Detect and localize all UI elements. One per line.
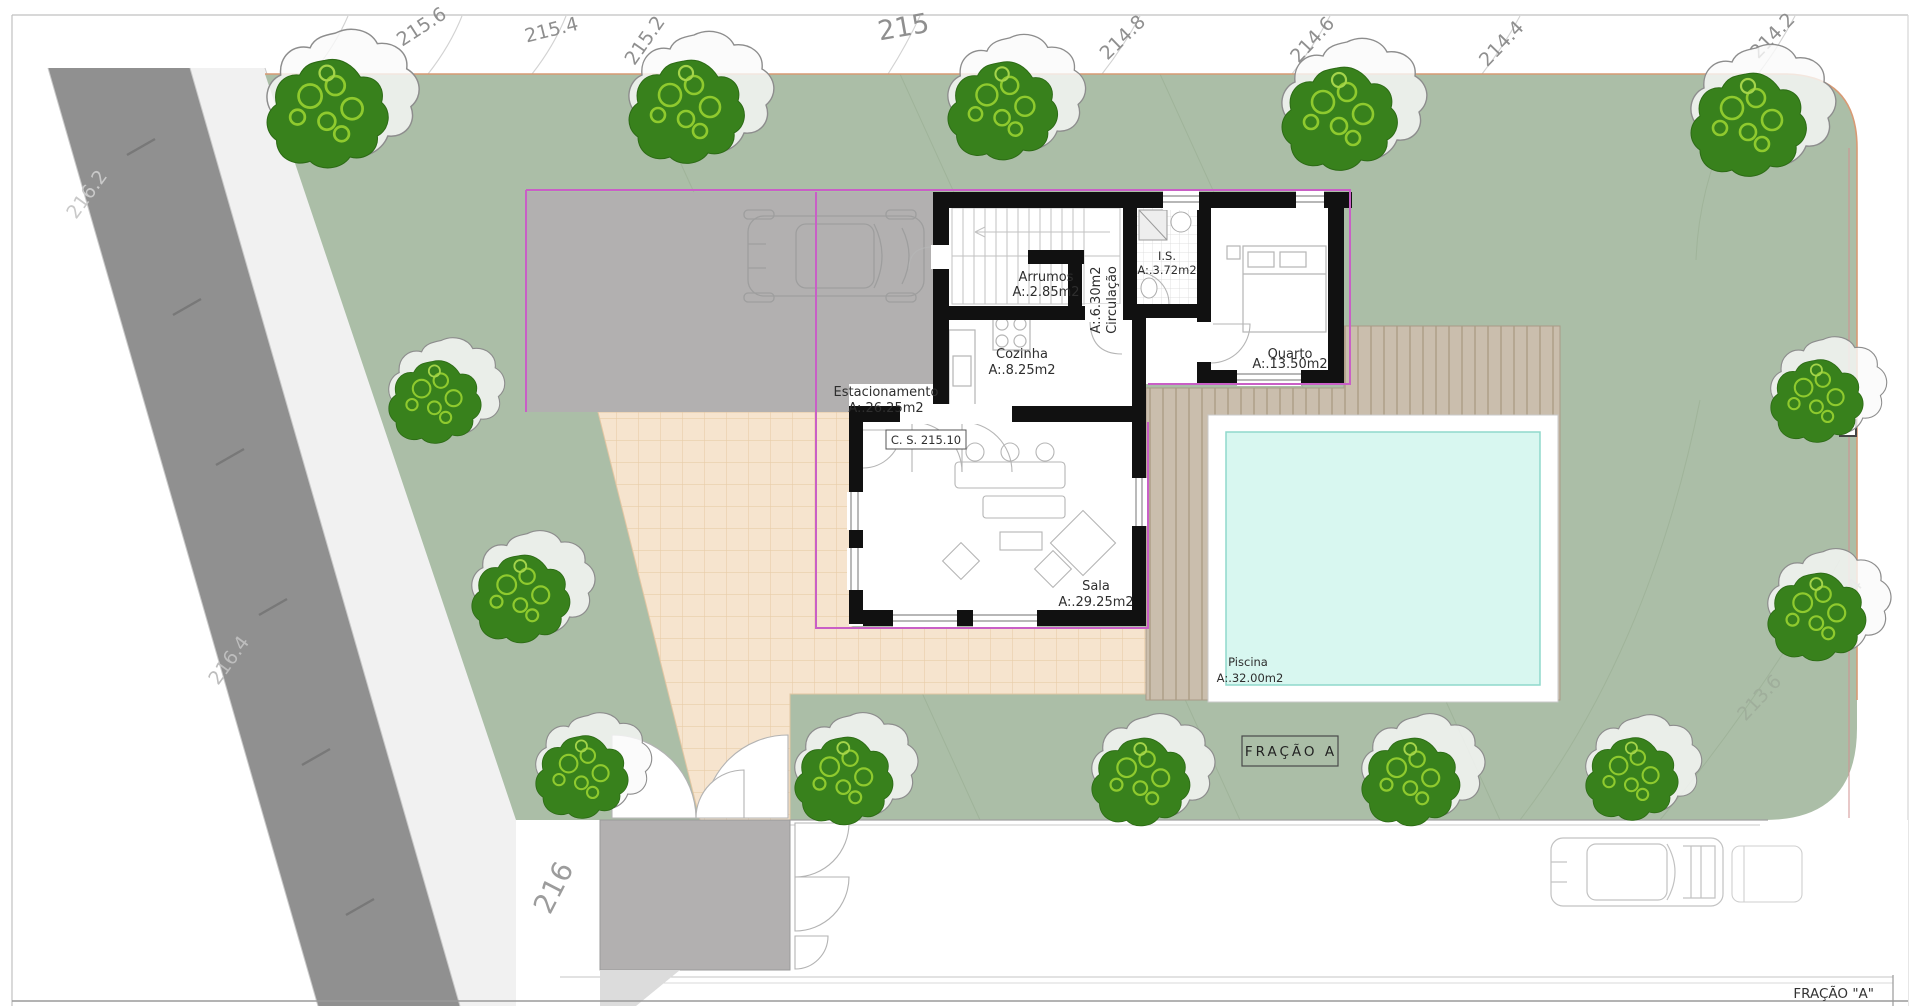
label-is: I.S. [1158,249,1176,263]
parked-car [1551,838,1723,906]
label-cozinha-area: A:.8.25m2 [988,363,1055,378]
label-arrumos: Arrumos [1019,270,1074,285]
cs-level-annotation: C. S. 215.10 [886,430,966,449]
label-estacionamento: Estacionamento [834,385,939,400]
garage-slab [526,192,933,412]
label-sala: Sala [1082,579,1110,594]
parking-bay-outline [1732,846,1802,902]
site-plan-drawing: 215.6 215.4 215.2 215 214.8 214.6 214.4 … [0,0,1920,1006]
label-estacionamento-area: A:.26.25m2 [848,401,923,416]
label-piscina-area: A:.32.00m2 [1217,671,1284,685]
label-is-area: A:.3.72m2 [1137,263,1196,277]
label-piscina: Piscina [1228,655,1268,669]
cs-level-text: C. S. 215.10 [891,433,961,447]
driveway-slab [600,820,790,970]
label-arrumos-area: A:.2.85m2 [1012,285,1079,300]
label-cozinha: Cozinha [996,347,1048,362]
label-circulacao-area: A:.6.30m2 [1089,266,1104,333]
label-quarto-area: A:.13.50m2 [1252,357,1327,372]
fraction-title-text: FRAÇÃO "A" [1793,985,1874,1002]
dining-set [955,443,1065,488]
pool-water [1226,432,1540,685]
fraction-badge-text: FRAÇÃO A [1245,743,1337,760]
label-sala-area: A:.29.25m2 [1058,595,1133,610]
label-circulacao: Circulação [1105,266,1120,334]
